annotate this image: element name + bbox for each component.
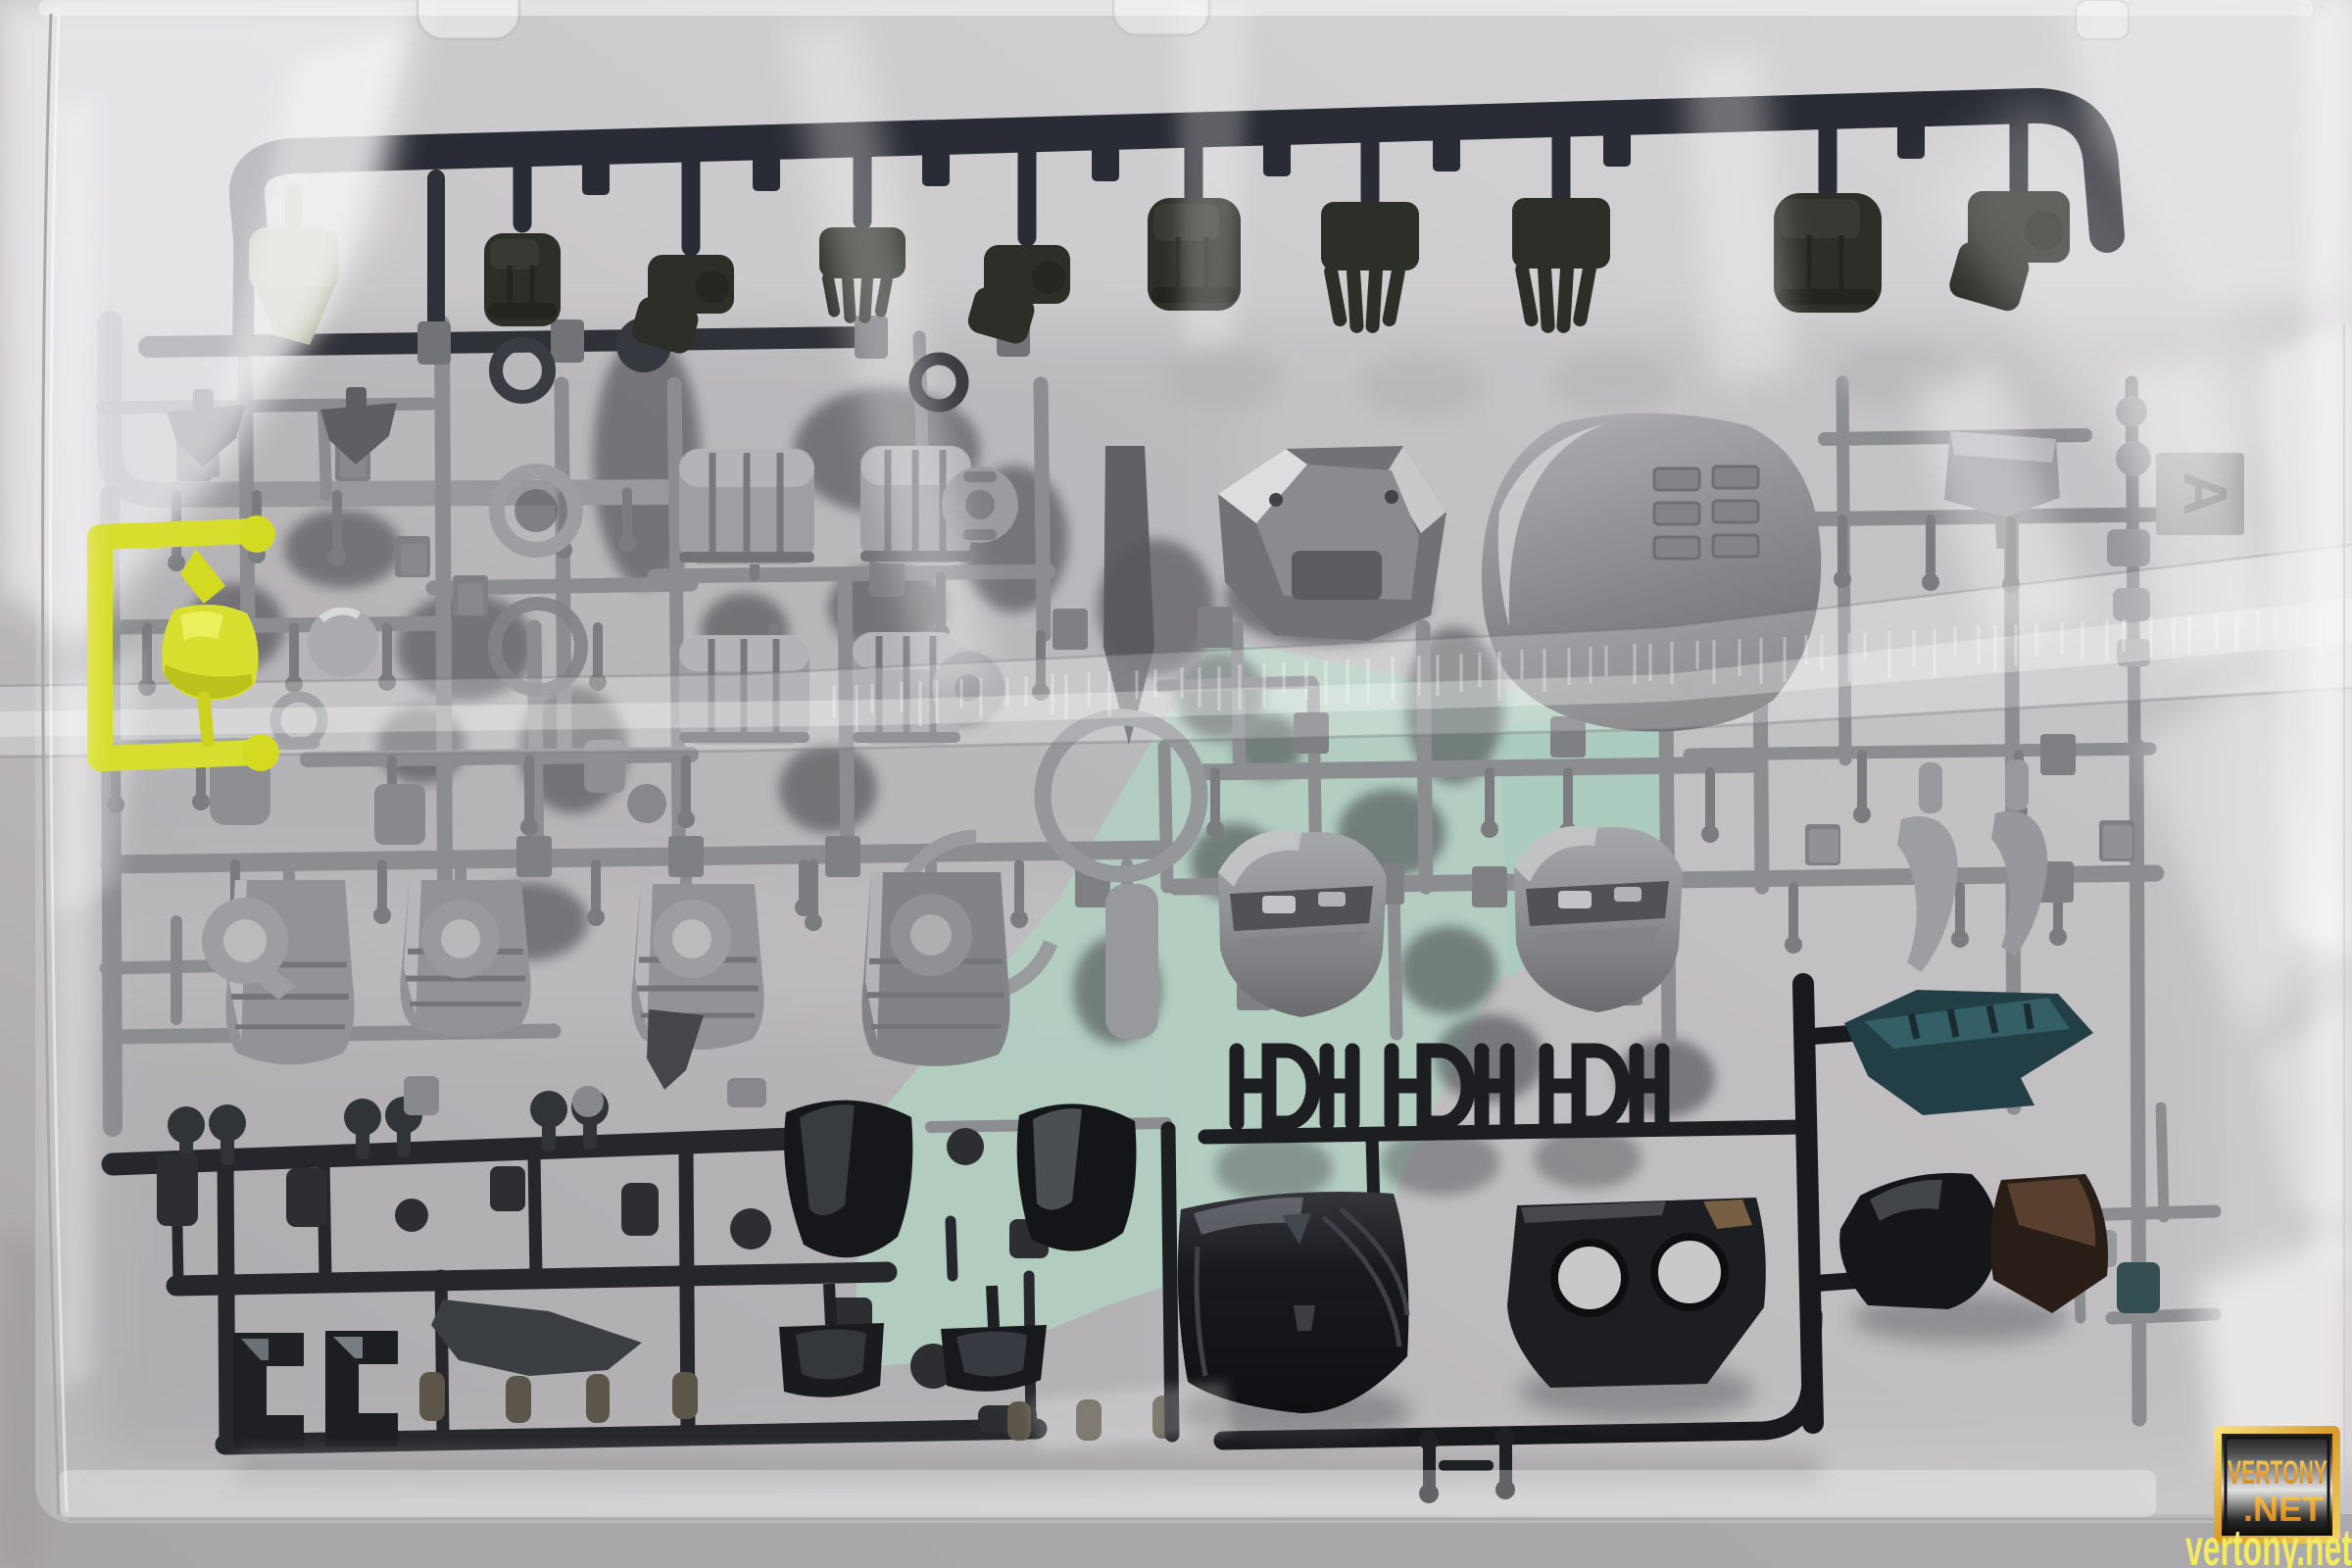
svg-text:vertony.net: vertony.net — [2185, 1520, 2352, 1568]
svg-text:VERTONY: VERTONY — [2228, 1454, 2327, 1492]
